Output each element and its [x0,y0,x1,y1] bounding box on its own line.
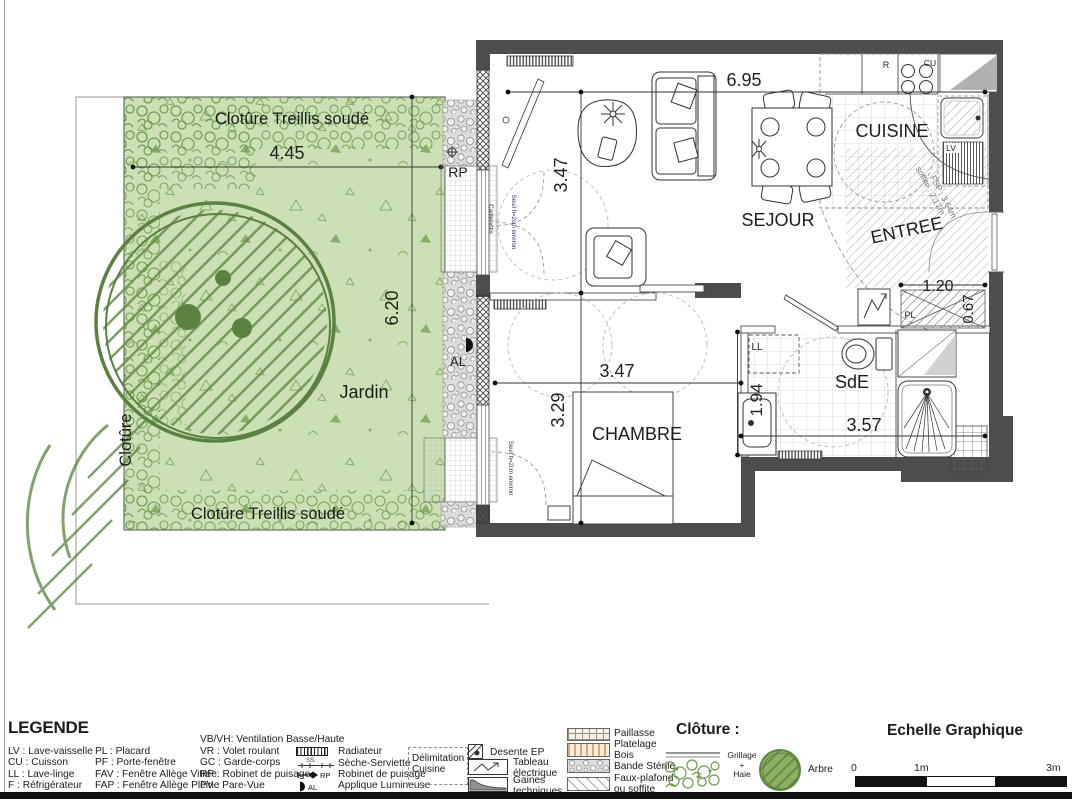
legend-item: Délimitation [412,753,464,764]
roller-shutter-window [477,70,489,170]
door-swing [492,172,544,274]
open-door-leaf [784,295,838,331]
tap-symbol-icon: RP [296,769,336,780]
vanity-icon [898,330,956,377]
scale-title: Echelle Graphique [845,722,1065,740]
legend-item: Tableau [513,758,557,769]
plant-icon [601,102,625,126]
floor-plan-svg: Clotûre Treillis soudé 4.45 6.20 Jardin … [0,0,1072,718]
al-label: AL [450,354,466,369]
dim-3-57: 3.57 [846,415,881,435]
legend-item: Platelage [614,740,656,751]
armchair-icon [586,228,646,286]
radiator-icon [494,300,546,309]
dining-set-icon [752,90,832,205]
scale-bar [855,776,1067,787]
legend-col-appliances: LV : Lave-vaisselle CU : Cuisson LL : La… [8,746,93,792]
hob-label: CU [924,58,936,68]
clearance-circle [603,293,707,397]
legend-col-misc: VR : Volet roulant GC : Garde-corps RP :… [200,746,310,792]
svg-text:AL: AL [308,783,317,792]
jardin-label: Jardin [339,382,388,402]
fence-top-label: Clotûre Treillis soudé [215,110,369,128]
radiator-symbol-icon [296,747,328,756]
scale-tick-1m: 1m [914,762,929,774]
svg-text:RP: RP [320,771,330,780]
scale-bar-segment [856,777,926,786]
electrical-panel-icon [858,289,890,325]
paillasse-swatch-icon [567,728,610,741]
french-window-chambre [477,405,489,505]
dim-3-47-chambre: 3.47 [599,361,634,381]
scale-tick-3m: 3m [1046,762,1061,774]
towel-radiator-symbol-icon: SS. [296,757,336,769]
towel-radiator-icon [778,451,822,459]
legend-item: Sèche-Serviette [338,758,410,769]
pl-label: PL [904,310,915,320]
windows [477,70,489,523]
sofa-icon [652,72,716,180]
downpipe-symbol-icon [468,744,483,759]
legend-item: LV : Lave-vaisselle [8,746,93,757]
legend-col3-header: VB/VH: Ventilation Basse/Haute [200,734,344,745]
lv-label: LV [946,143,956,153]
legend-item: Cuisine [412,764,464,775]
sink-icon [941,98,983,138]
sliding-door-panel [640,285,704,292]
dim-3-47-sejour: 3.47 [551,157,571,192]
dim-1-94: 1.94 [747,383,766,416]
electrical-panel-symbol-icon [468,759,508,775]
legend-item: CU : Cuisson [8,757,93,768]
dim-4-45: 4.45 [269,143,304,163]
legend-item: Radiateur [338,746,382,757]
legend-item: Paillasse [614,728,655,739]
legend-item: LL : Lave-linge [8,769,93,780]
dim-0-67: 0.67 [960,294,977,323]
floor-plan-page: Clotûre Treillis soudé 4.45 6.20 Jardin … [0,0,1072,800]
sejour: SEJOUR Seuil h=2cm environ [492,56,832,286]
delimitation-cuisine-box: Délimitation Cuisine [408,747,468,785]
ll-label: LL [751,342,763,353]
wall-light-symbol-icon: AL [296,780,336,792]
fence-bottom-label: Clotûre Treillis soudé [191,505,345,523]
gravel-strip [441,502,481,527]
roller-shutter-window [477,505,489,523]
shower-icon [898,381,956,457]
grillage-haie-swatch-icon [662,749,724,791]
hob-icon [902,65,933,94]
fridge-label: R [883,60,890,70]
technical-ducts-symbol-icon [468,777,508,792]
faux-plafond-swatch-icon [567,777,610,791]
seuil-note: Seuil h=2cm environ [507,441,513,496]
dishwasher-icon: LV [943,142,983,184]
sejour-label: SEJOUR [741,210,814,230]
toilet-icon [842,338,892,370]
scale-bar-segment [926,777,996,786]
bande-sterile-swatch-icon [567,759,610,773]
door-swing [492,452,546,505]
dim-3-29: 3.29 [548,392,568,427]
scale-bar-segment [996,777,1066,786]
tree-icon [96,203,334,441]
svg-text:SS.: SS. [306,758,316,764]
legend-item-group: Platelage Bois [614,740,656,761]
arbre-symbol-icon [756,746,804,794]
legend-item: GC : Garde-corps [200,757,310,768]
legend-title: LEGENDE [8,718,89,738]
seuil-note: Seuil h=2cm environ [510,195,516,250]
legend-item: Bois [614,751,656,762]
sde-label: SdE [835,372,869,392]
bottom-border-bar [0,792,1072,799]
radiator-icon [507,56,573,66]
legend-item: F : Réfrigérateur [8,780,93,791]
platelage-swatch-icon [567,743,610,757]
chambre-label: CHAMBRE [592,424,682,444]
fence-left-label: Clotûre [117,413,135,466]
garden: Clotûre Treillis soudé 4.45 6.20 Jardin … [27,95,489,628]
dim-6-95: 6.95 [726,70,761,90]
french-window-sejour [477,170,489,275]
coffee-table-icon [578,100,637,167]
cloture-title: Clôture : [676,721,740,739]
dim-1-20: 1.20 [922,278,953,295]
legend-item: Gaines [513,776,562,787]
legend-item: PV : Pare-Vue [200,780,310,791]
gravel-strip [443,100,477,166]
chambre: CHAMBRE Seuil h=2cm environ [492,293,707,524]
legend-item: VR : Volet roulant [200,746,310,757]
scale-tick-0: 0 [851,762,857,774]
legend-item: RP : Robinet de puisage [200,769,310,780]
roller-shutter-window [477,295,489,405]
rp-label: RP [448,164,467,180]
dim-6-20: 6.20 [382,290,402,325]
legend-item: Arbre [808,764,833,775]
